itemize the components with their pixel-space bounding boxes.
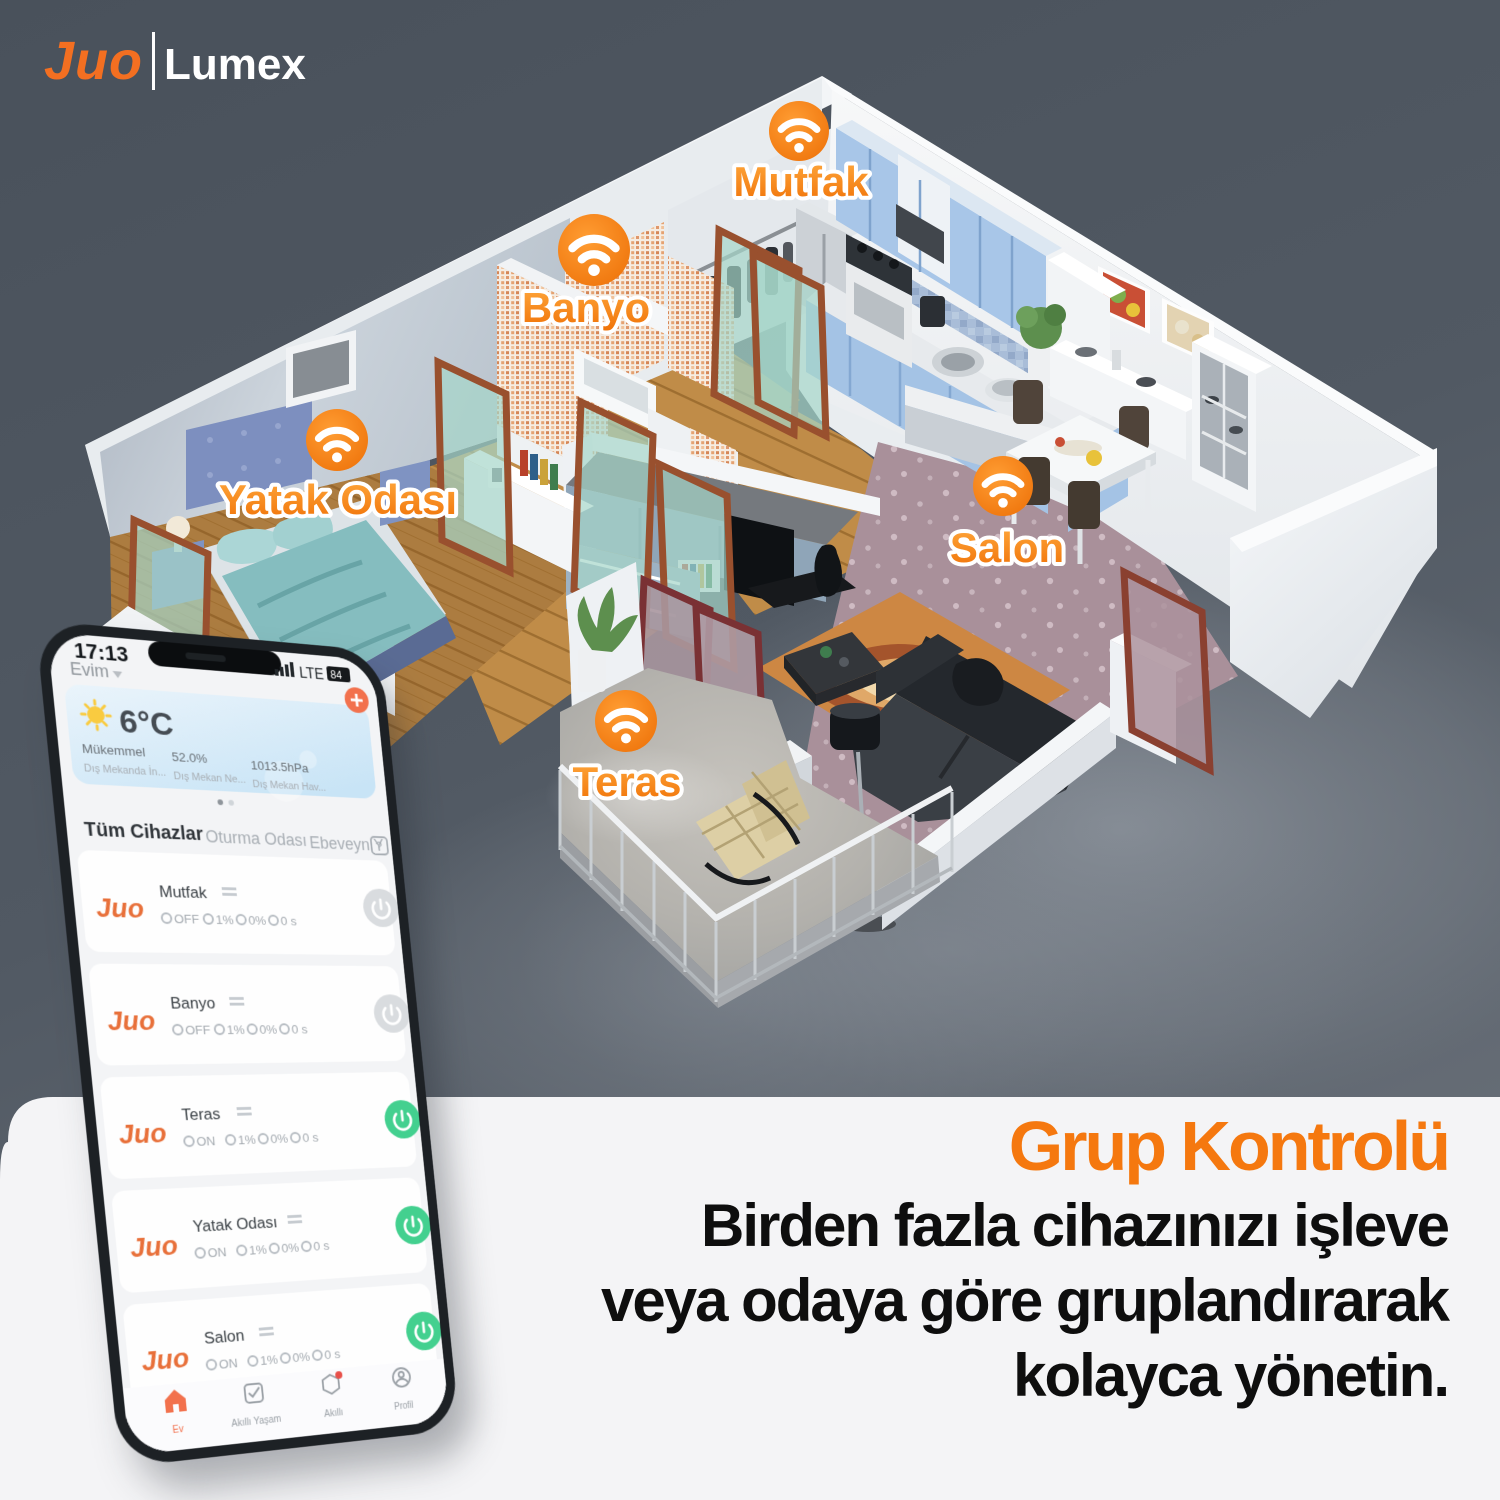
svg-text:Banyo: Banyo — [170, 994, 217, 1012]
svg-text:0 s: 0 s — [302, 1130, 319, 1144]
svg-text:Teras: Teras — [573, 758, 682, 805]
svg-text:Salon: Salon — [950, 524, 1064, 571]
svg-text:1%: 1% — [226, 1023, 245, 1037]
svg-text:Ev: Ev — [172, 1424, 184, 1436]
svg-text:ON: ON — [196, 1134, 216, 1149]
svg-text:52.0%: 52.0% — [171, 750, 208, 766]
svg-text:Mutfak: Mutfak — [158, 883, 208, 902]
svg-text:0 s: 0 s — [291, 1022, 308, 1036]
svg-text:Evim: Evim — [69, 659, 110, 681]
svg-text:Akıllı: Akıllı — [324, 1408, 344, 1420]
svg-text:0%: 0% — [292, 1349, 311, 1365]
svg-text:ON: ON — [207, 1245, 227, 1260]
svg-text:Oturma Odası: Oturma Odası — [205, 827, 308, 850]
svg-text:OFF: OFF — [185, 1023, 211, 1037]
svg-text:Juo: Juo — [129, 1229, 179, 1263]
svg-text:Yatak Odası: Yatak Odası — [219, 476, 457, 523]
svg-text:1%: 1% — [237, 1132, 256, 1147]
svg-text:84: 84 — [330, 668, 343, 682]
svg-text:Juo: Juo — [140, 1342, 190, 1377]
svg-text:Tüm Cihazlar: Tüm Cihazlar — [83, 819, 204, 845]
svg-text:6°C: 6°C — [118, 703, 175, 743]
svg-text:OFF: OFF — [173, 912, 200, 927]
svg-text:Juo: Juo — [106, 1005, 157, 1036]
svg-text:Salon: Salon — [203, 1326, 245, 1347]
svg-text:Banyo: Banyo — [522, 284, 650, 331]
svg-text:0%: 0% — [270, 1131, 289, 1146]
svg-text:1%: 1% — [248, 1242, 267, 1257]
svg-text:Juo: Juo — [117, 1117, 168, 1149]
svg-text:0 s: 0 s — [280, 914, 297, 928]
svg-text:Teras: Teras — [181, 1105, 221, 1124]
svg-text:0%: 0% — [248, 913, 267, 927]
svg-text:Juo: Juo — [94, 892, 145, 924]
svg-text:1%: 1% — [215, 913, 234, 927]
svg-text:Profil: Profil — [394, 1400, 414, 1412]
svg-text:0 s: 0 s — [324, 1347, 341, 1362]
svg-text:Mutfak: Mutfak — [733, 158, 869, 205]
svg-text:ON: ON — [218, 1356, 238, 1372]
svg-text:0%: 0% — [281, 1240, 300, 1255]
svg-text:0%: 0% — [259, 1022, 278, 1036]
svg-text:0 s: 0 s — [313, 1238, 330, 1253]
svg-text:1%: 1% — [259, 1352, 278, 1368]
svg-text:LTE: LTE — [299, 665, 325, 683]
